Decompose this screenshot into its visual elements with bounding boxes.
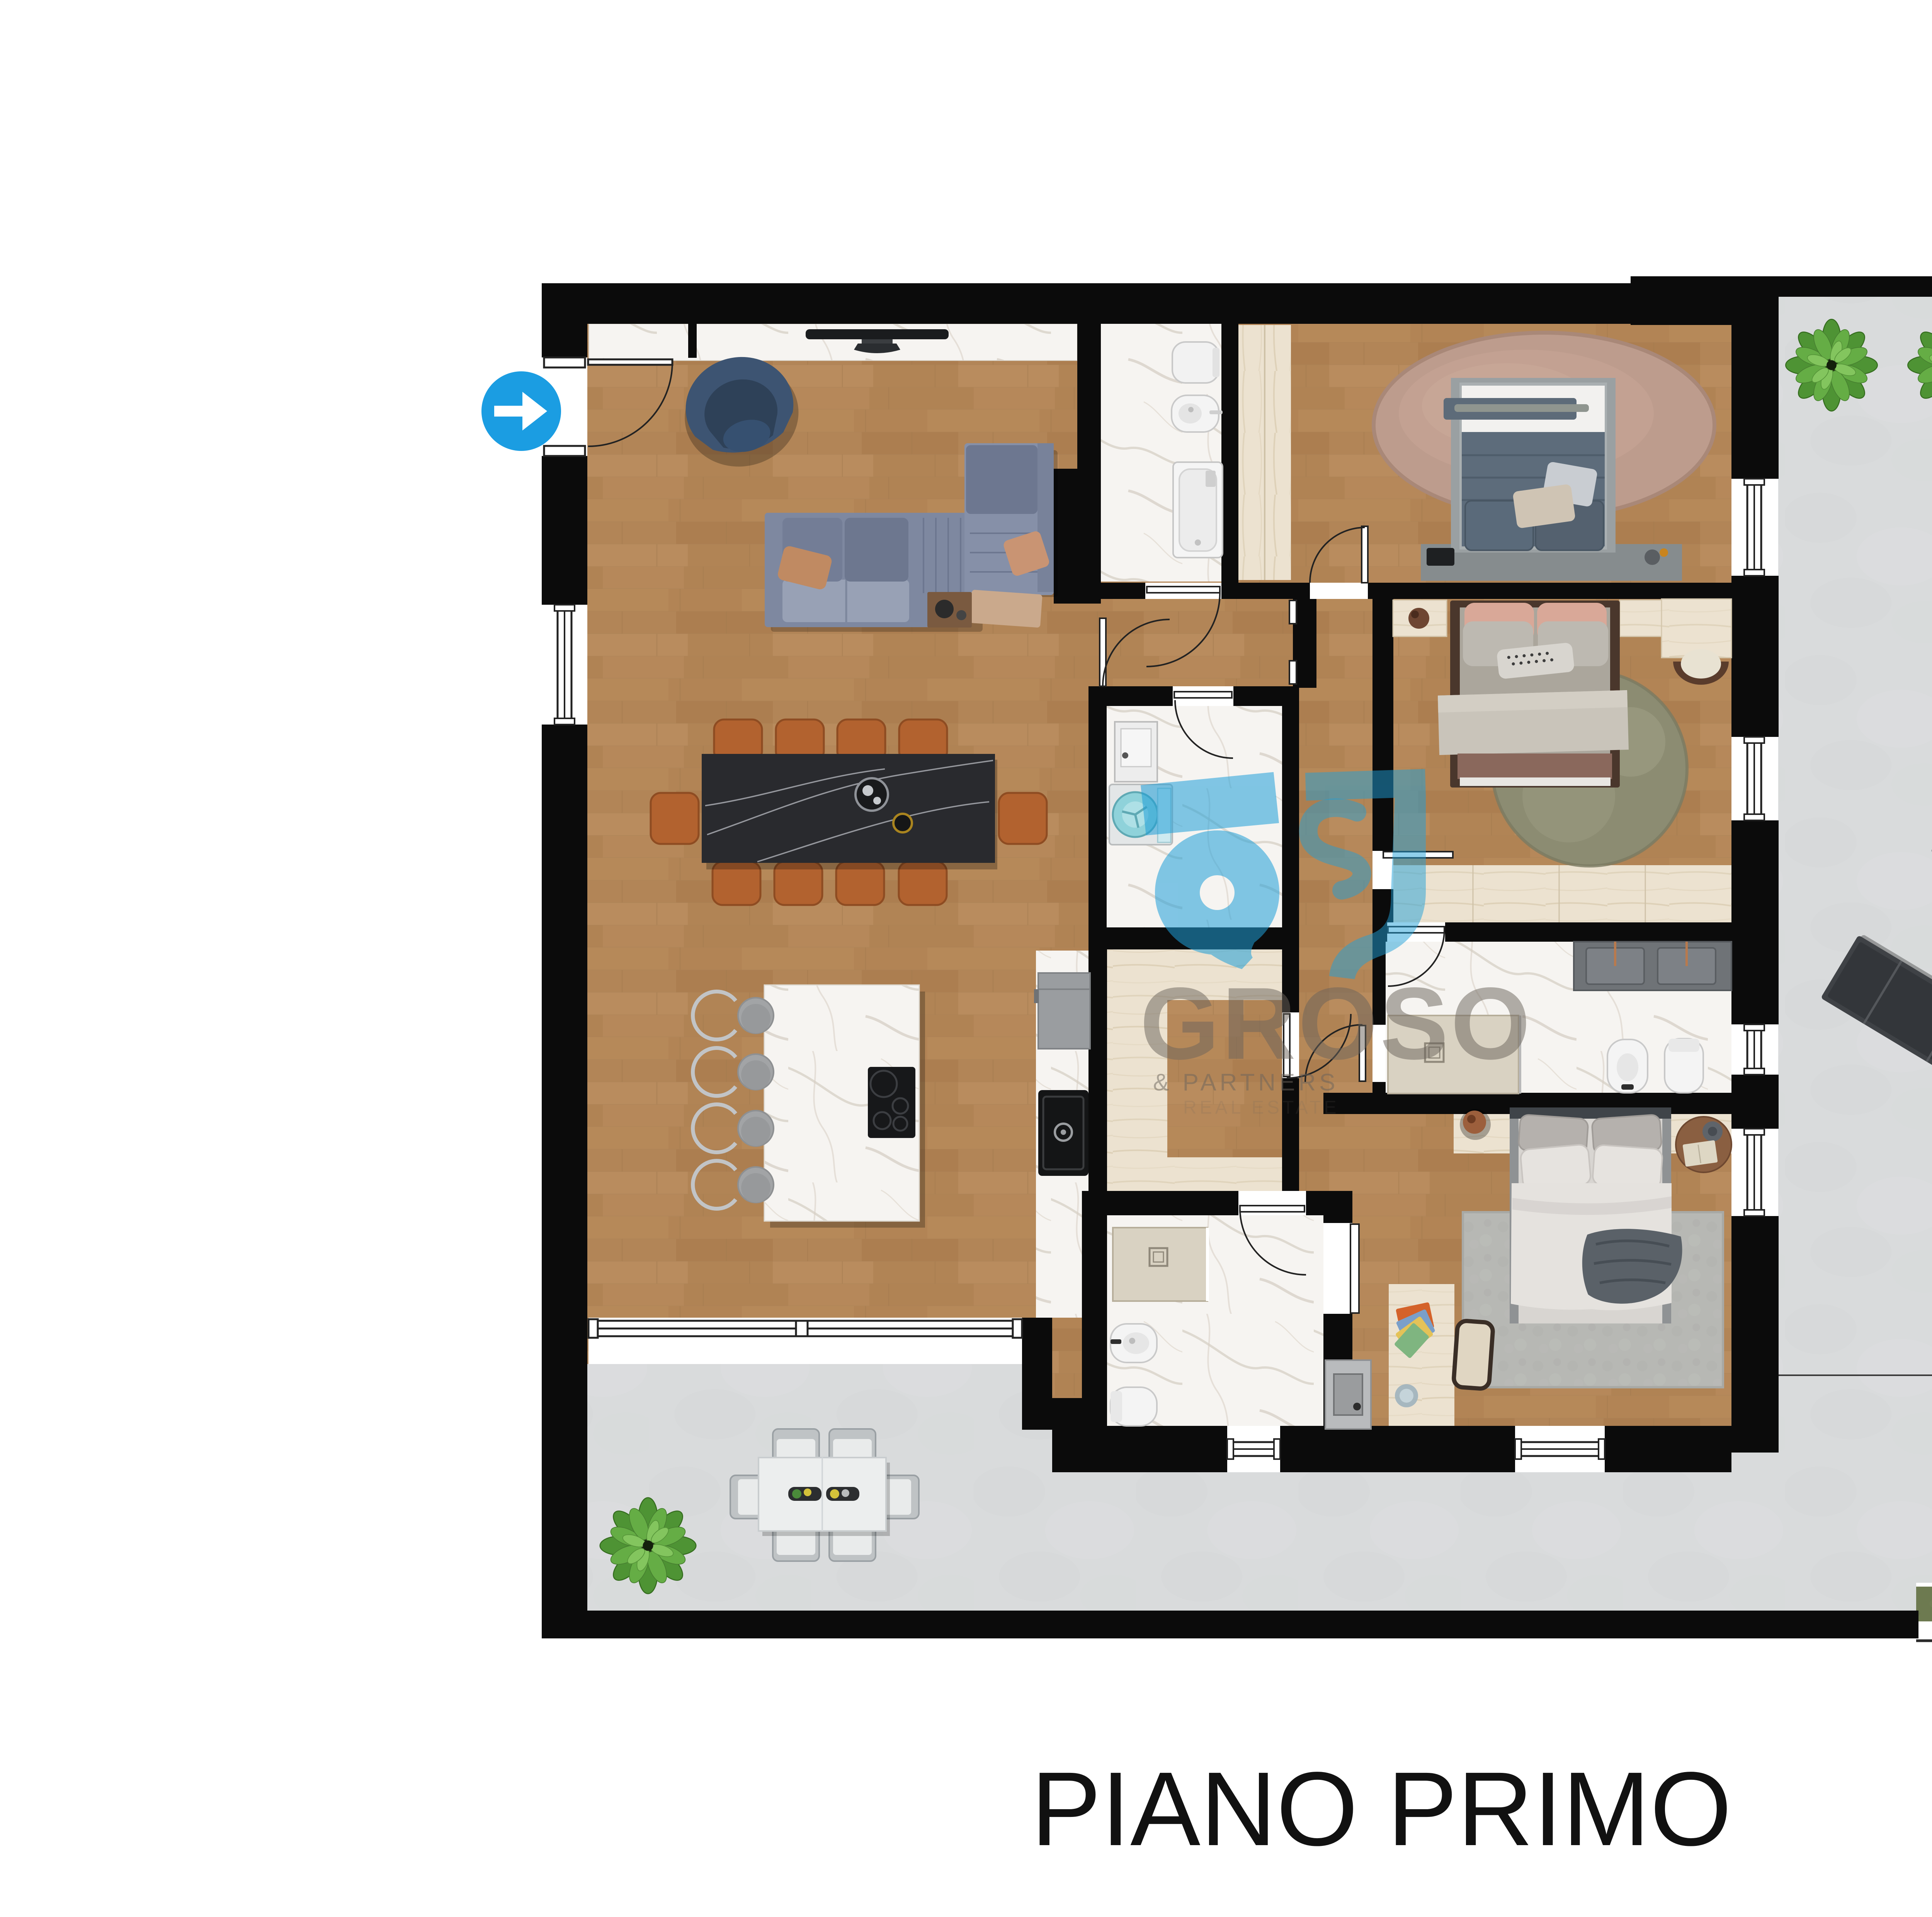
- svg-text:GROSO: GROSO: [1140, 966, 1533, 1081]
- svg-text:PIANO PRIMO: PIANO PRIMO: [1031, 1750, 1732, 1868]
- svg-text:REAL ESTATE: REAL ESTATE: [1183, 1097, 1340, 1118]
- svg-text:& PARTNERS: & PARTNERS: [1153, 1069, 1338, 1096]
